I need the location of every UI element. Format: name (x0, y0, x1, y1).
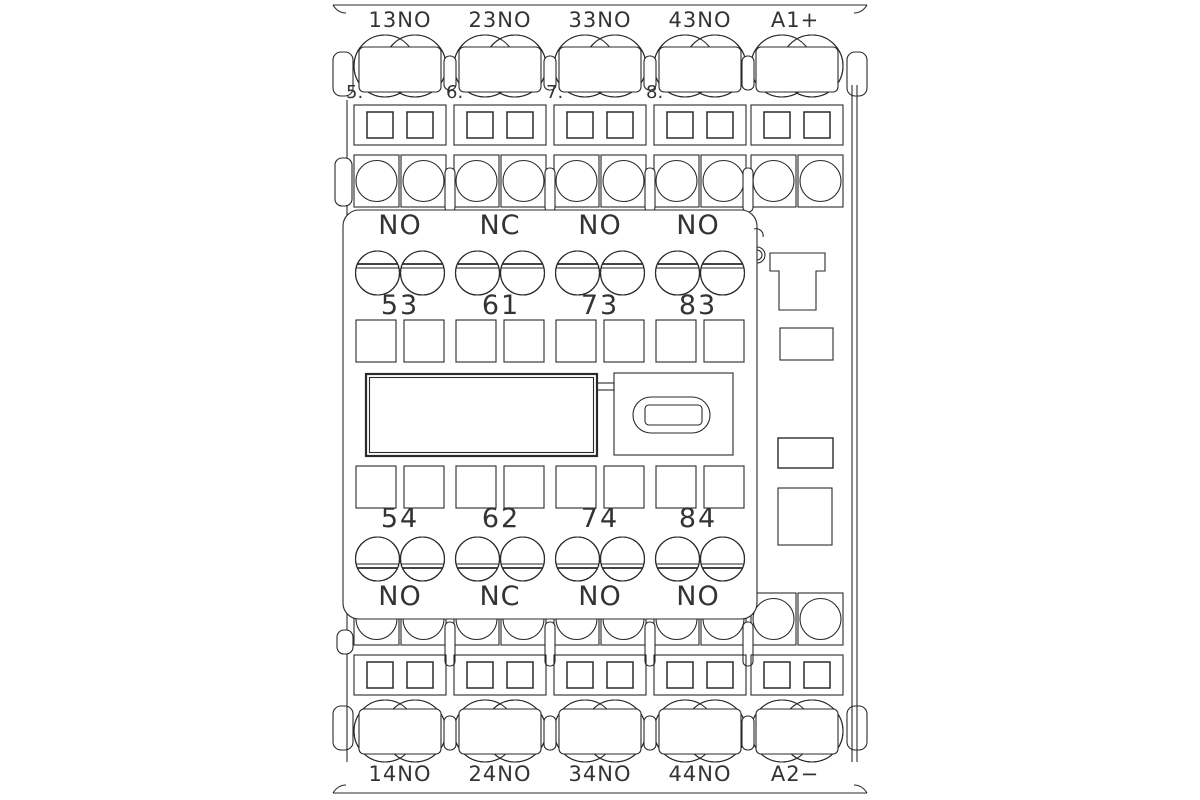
top-terminal-squares (354, 105, 843, 145)
contactor-diagram: 13NO 23NO 33NO 43NO A1+ 5. 6. 7. 8. NO N… (0, 0, 1200, 800)
contactor-line-art (0, 0, 1200, 800)
bottom-clamp-row (333, 700, 867, 762)
bottom-terminal-squares (354, 655, 843, 695)
top-clamp-row (333, 35, 867, 97)
din-rail-area (770, 253, 833, 545)
top-screw-ports (335, 155, 843, 212)
